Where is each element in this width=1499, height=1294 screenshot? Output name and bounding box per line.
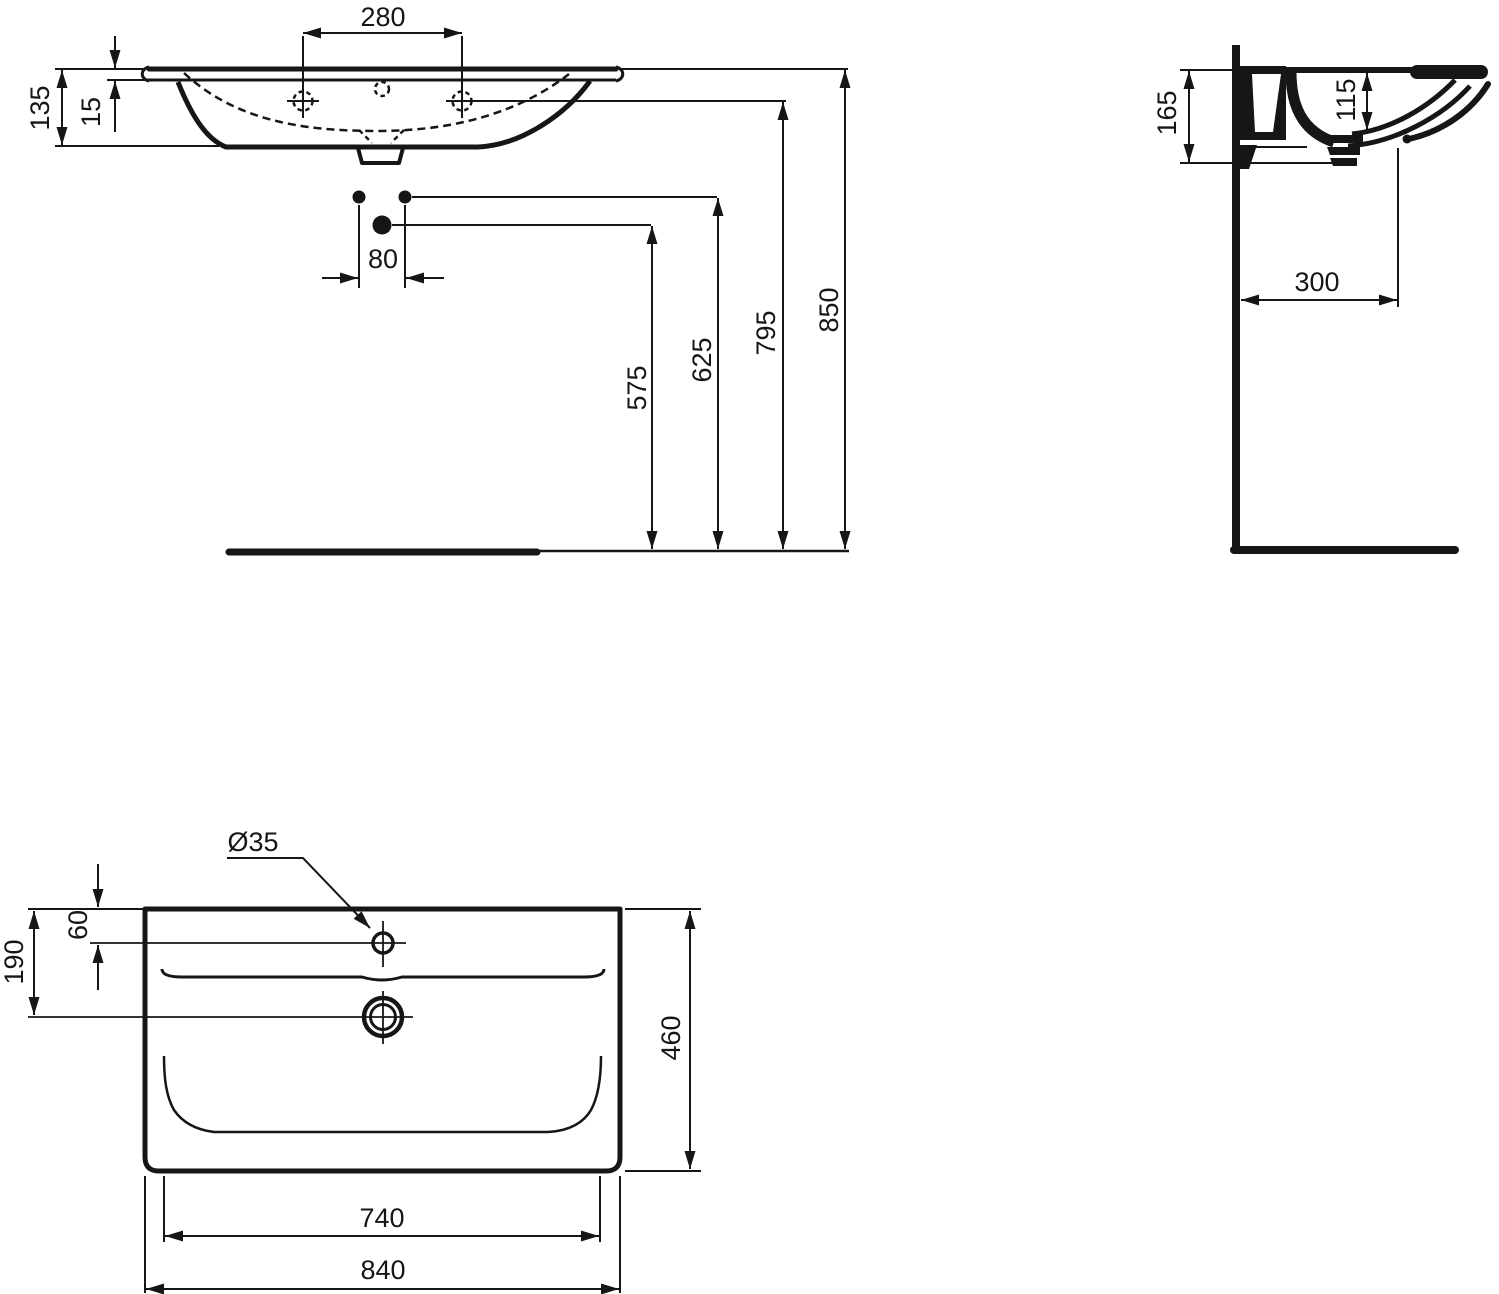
dim-label-300: 300 xyxy=(1294,267,1339,297)
dim-label-15: 15 xyxy=(76,97,106,127)
dim-tap-hole-from-back: 60 xyxy=(28,864,406,990)
mounting-bolt-dot-left xyxy=(353,191,366,204)
dim-label-80: 80 xyxy=(368,244,398,274)
dim-label-135: 135 xyxy=(25,85,55,130)
dim-label-60: 60 xyxy=(63,910,93,940)
dim-label-625: 625 xyxy=(687,337,717,382)
dim-basin-inner-depth: 115 xyxy=(1331,73,1367,130)
dim-tap-hole-height: 795 xyxy=(751,102,783,549)
trap-outlet-dot xyxy=(373,216,392,235)
dim-rim-thickness: 15 xyxy=(76,36,146,132)
dim-rim-top-height: 850 xyxy=(814,70,845,549)
dim-inner-width: 740 xyxy=(164,1176,600,1242)
basin-outer-profile xyxy=(178,81,590,147)
front-view: 280 135 15 80 575 xyxy=(25,2,849,552)
dim-basin-depth: 460 xyxy=(625,909,701,1171)
dim-label-280: 280 xyxy=(360,2,405,32)
wall-foot-detail xyxy=(1240,145,1257,169)
top-view: Ø35 60 190 460 740 xyxy=(0,827,701,1293)
side-view: 165 115 300 xyxy=(1152,45,1488,550)
dim-label-575: 575 xyxy=(622,365,652,410)
bowl-back-edge-line xyxy=(162,969,604,980)
bowl-front-edge-line xyxy=(164,1056,601,1132)
dim-overall-width: 840 xyxy=(145,1176,620,1293)
dim-drain-from-back: 190 xyxy=(0,911,413,1017)
washbasin-dimension-drawing: 280 135 15 80 575 xyxy=(0,0,1499,1294)
dim-label-190: 190 xyxy=(0,939,29,984)
dim-label-850: 850 xyxy=(814,287,844,332)
drain-outlet-stub xyxy=(358,148,403,163)
bowl-back-wall-curve xyxy=(1291,72,1334,142)
technical-drawing-page: 280 135 15 80 575 xyxy=(0,0,1499,1294)
drain-trap-ribs xyxy=(1324,135,1363,166)
dim-label-d35: Ø35 xyxy=(227,827,278,857)
dim-label-165: 165 xyxy=(1152,90,1182,135)
dim-label-840: 840 xyxy=(360,1255,405,1285)
apron-front-edge xyxy=(1403,135,1412,144)
mounting-bolt-dot-right xyxy=(399,191,412,204)
dim-trap-outlet-height: 575 xyxy=(622,226,652,549)
dim-tap-hole-spacing: 280 xyxy=(303,2,462,118)
dim-label-740: 740 xyxy=(359,1203,404,1233)
dim-wall-to-outlet: 300 xyxy=(1241,148,1398,307)
dim-tap-hole-diameter: Ø35 xyxy=(227,827,370,928)
tap-hole-center-hidden xyxy=(375,82,389,96)
dim-label-795: 795 xyxy=(751,310,781,355)
dim-label-115: 115 xyxy=(1331,78,1361,121)
dim-label-460: 460 xyxy=(656,1015,686,1060)
apron-outer-curve xyxy=(1409,84,1488,139)
dim-bolt-hole-height: 625 xyxy=(687,198,718,549)
